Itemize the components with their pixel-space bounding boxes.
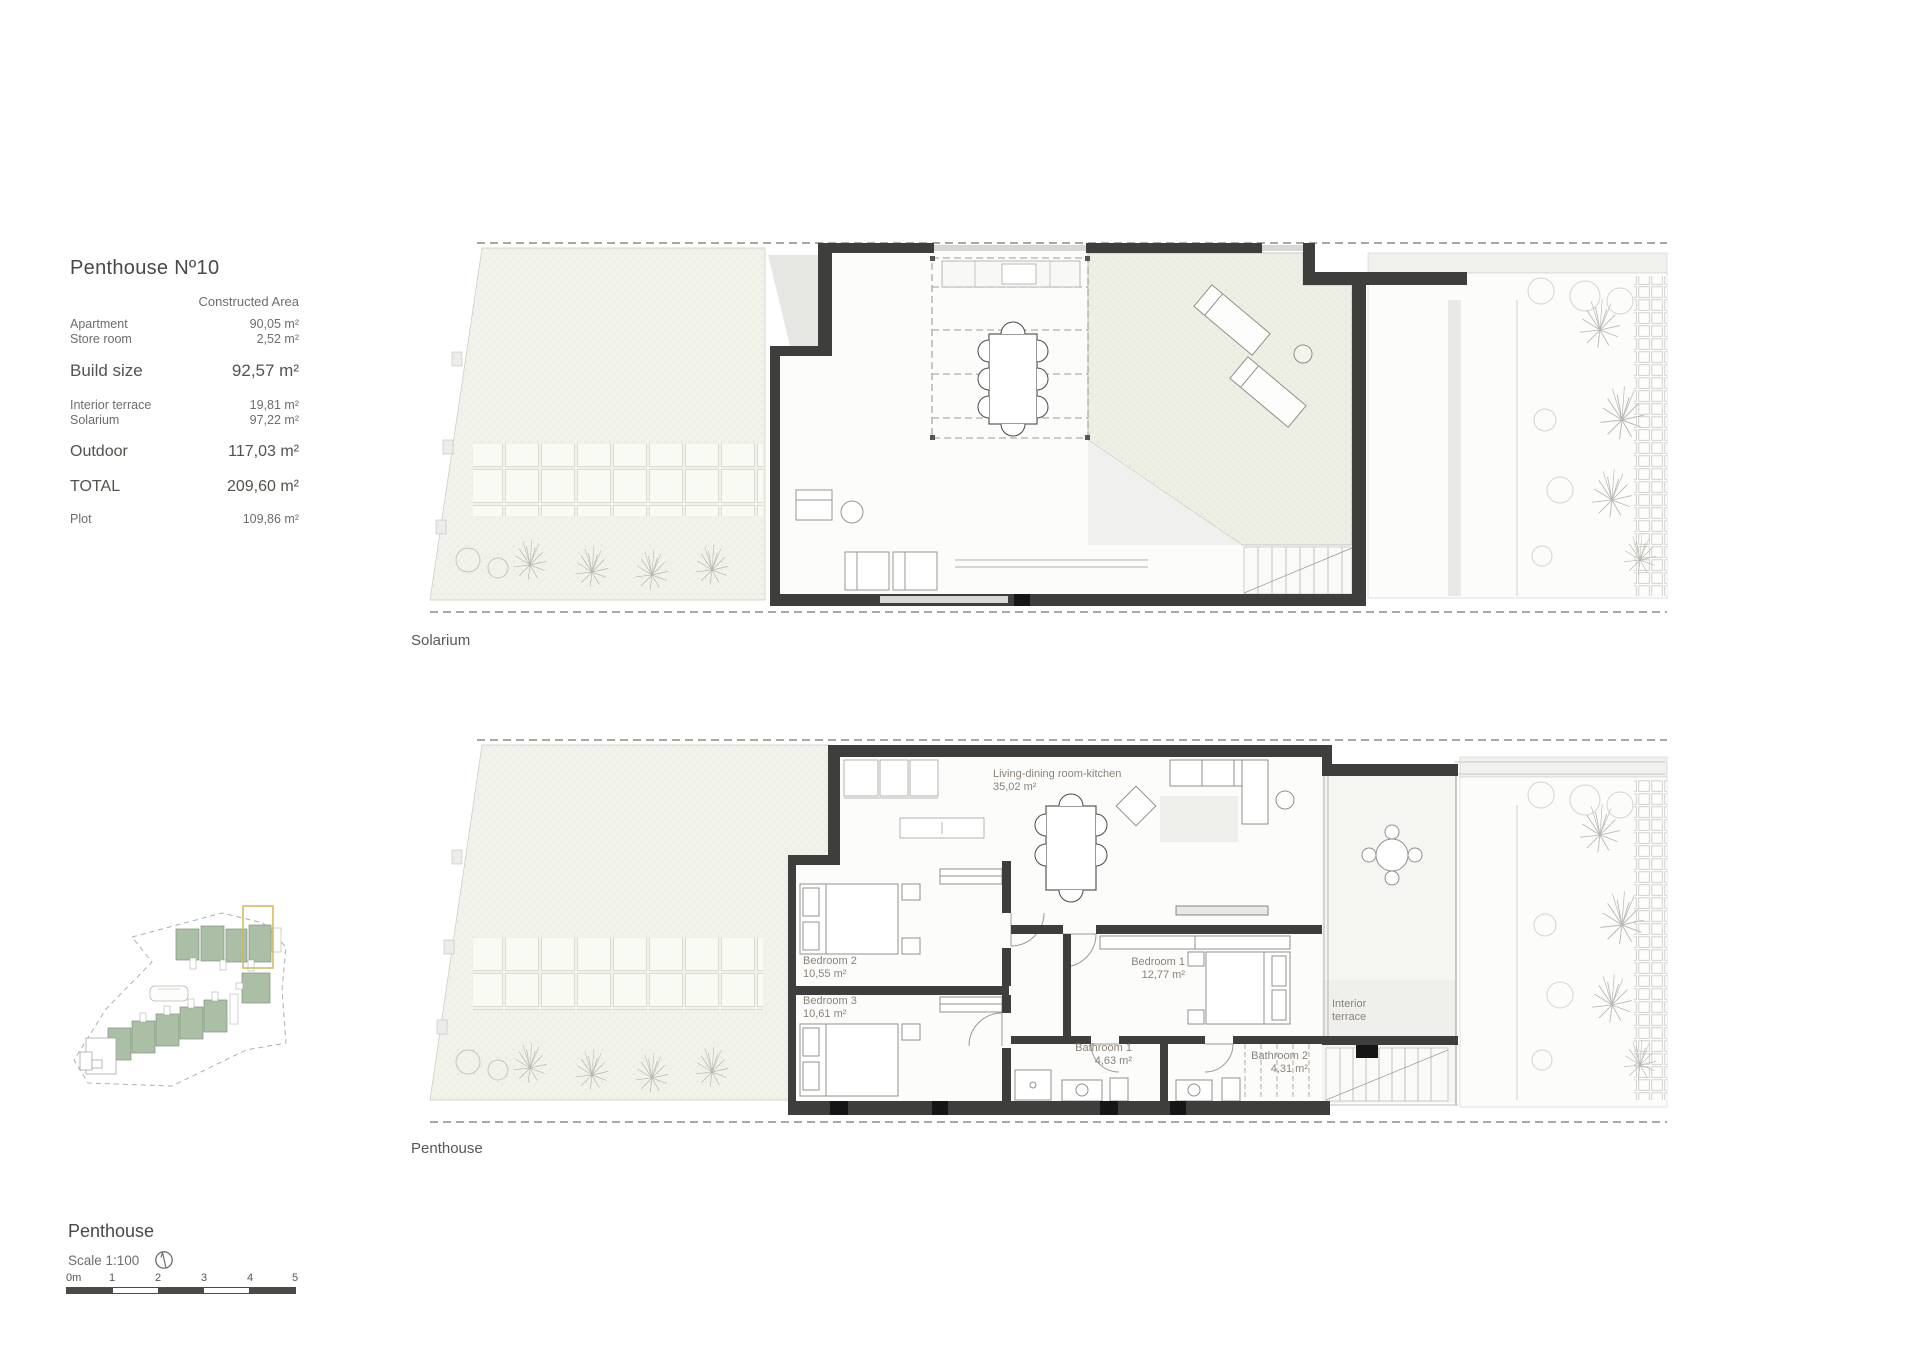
solarium-deck <box>1088 253 1352 545</box>
row-apartment: Apartment 90,05 m² <box>70 317 299 332</box>
label-bedroom1: Bedroom 1 12,77 m² <box>1085 956 1185 982</box>
solarium-floor-plan <box>420 235 1670 627</box>
column-header-constructed-area: Constructed Area <box>70 294 299 309</box>
row-solarium: Solarium 97,22 m² <box>70 413 299 428</box>
site-plan-minimap <box>64 903 292 1093</box>
door-threshold <box>1014 594 1030 606</box>
north-arrow-icon <box>153 1249 175 1271</box>
unit-title: Penthouse Nº10 <box>70 257 299 280</box>
penthouse-caption: Penthouse <box>411 1140 483 1157</box>
label-bedroom3: Bedroom 3 10,61 m² <box>803 995 857 1021</box>
row-build-size: Build size 92,57 m² <box>70 361 299 381</box>
scale-label: Scale 1:100 <box>68 1253 139 1268</box>
row-store-room: Store room 2,52 m² <box>70 332 299 347</box>
right-terrace-garden <box>1368 253 1667 598</box>
area-summary-panel: Penthouse Nº10 Constructed Area Apartmen… <box>70 257 299 527</box>
building-mid <box>242 973 270 1003</box>
car <box>150 986 188 1001</box>
side-table <box>1294 345 1312 363</box>
building-row-top <box>176 925 271 962</box>
solarium-caption: Solarium <box>411 632 470 649</box>
outdoor-kitchen-counter <box>942 261 1080 287</box>
stone-paving <box>1634 276 1667 596</box>
left-garden <box>430 745 830 1100</box>
floor-plan-sheet: { "info_panel": { "title": "Penthouse Nº… <box>0 0 1920 1358</box>
left-garden <box>430 248 765 600</box>
label-interior-terrace: Interior terrace <box>1332 998 1382 1024</box>
row-interior-terrace: Interior terrace 19,81 m² <box>70 398 299 413</box>
scale-row: Scale 1:100 <box>68 1249 175 1271</box>
stone-paving <box>1634 780 1667 1100</box>
label-bathroom2: Bathroom 2 4,31 m² <box>1228 1050 1308 1076</box>
sheet-title: Penthouse <box>68 1221 154 1242</box>
scale-bar-segments <box>66 1287 296 1294</box>
dining-table <box>978 322 1048 436</box>
row-total: TOTAL 209,60 m² <box>70 477 299 496</box>
tv-console <box>1176 906 1268 915</box>
stairs <box>1244 547 1352 594</box>
label-living-room: Living-dining room-kitchen 35,02 m² <box>993 768 1121 794</box>
garden-tiles <box>473 444 763 516</box>
stairs <box>1326 1045 1448 1101</box>
right-terrace-garden <box>1454 757 1667 1107</box>
scale-bar: 0m 1 2 3 4 5 <box>66 1272 296 1294</box>
label-bathroom1: Bathroom 1 4,63 m² <box>1052 1042 1132 1068</box>
dining-table <box>1035 794 1107 902</box>
rug <box>1160 796 1238 842</box>
scale-ticks: 0m 1 2 3 4 5 <box>66 1272 296 1285</box>
row-plot: Plot 109,86 m² <box>70 512 299 527</box>
row-outdoor: Outdoor 117,03 m² <box>70 442 299 461</box>
building-white <box>80 1038 116 1074</box>
label-bedroom2: Bedroom 2 10,55 m² <box>803 955 857 981</box>
garden-tiles <box>473 938 763 1010</box>
